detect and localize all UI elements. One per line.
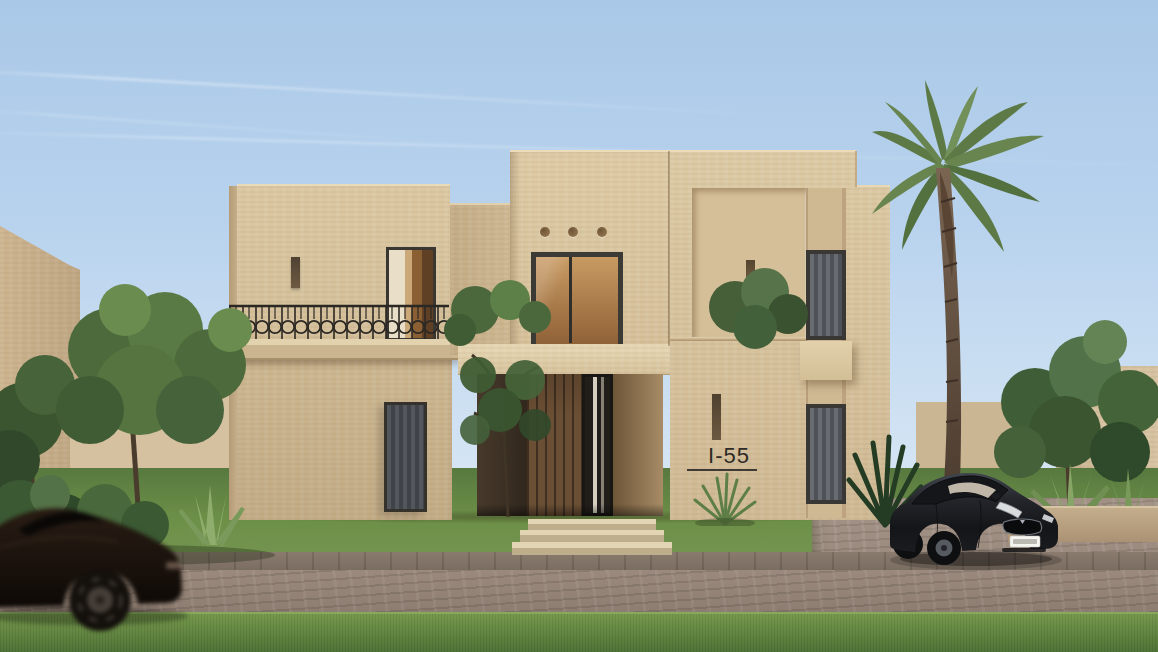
step-tread [520,530,664,542]
palm-fronds [872,80,1044,252]
window-right-lower [806,404,846,504]
facade-round-hole [597,227,607,237]
passing-car-motion-blurred [0,488,213,638]
grass-plant-house-number [683,468,768,526]
window-right-upper [806,250,846,340]
villa-exterior-scene: I-55 [0,0,1158,652]
slit-window-left-wing [291,257,300,288]
courtyard-tree [430,255,595,525]
window-lower-left [384,402,427,512]
wheel [69,569,131,631]
glass-reflection [601,377,604,513]
facade-round-hole [540,227,550,237]
porch-right-wall [613,374,663,516]
parked-tesla-sedan [884,460,1062,572]
taillight [166,562,180,569]
parapet-highlight [670,150,856,152]
house-number: I-55 [694,444,764,468]
tree-right-of-entry [700,252,810,352]
wheel [927,531,961,565]
license-plate [1010,536,1040,547]
slit-window-right-lower [712,394,721,440]
facade-round-hole [568,227,578,237]
front-intake [1002,548,1046,552]
side-mirror [992,493,1000,499]
step-tread [512,542,672,555]
